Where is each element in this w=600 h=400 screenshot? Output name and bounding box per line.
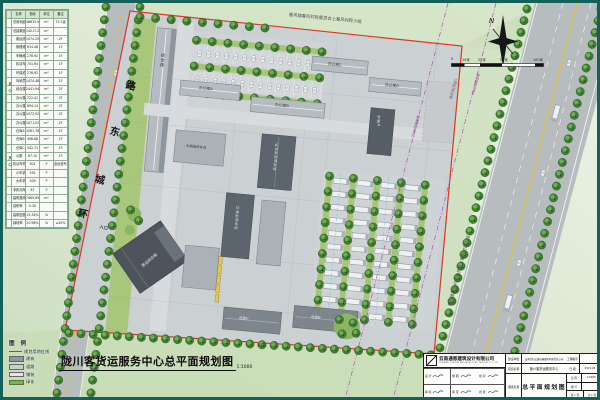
site-plan-drawing: N 名称 指标 单位 备注 总用地面积 48813.95 m² 73.2亩 bbox=[0, 0, 600, 400]
building-annex bbox=[182, 245, 220, 290]
table-row: 办公楼D 1071.02 m² 2F bbox=[7, 119, 68, 127]
date-value: 2021.04 bbox=[580, 364, 600, 373]
signature-mark bbox=[460, 389, 472, 395]
table-row: 办公楼C 1072.02 m² 2F bbox=[7, 111, 68, 119]
col-note: 备注 bbox=[54, 11, 68, 19]
drawing-scale: 1:1000 bbox=[237, 365, 253, 371]
owner-value: 云南世纪交通运输集团有限责任公司 bbox=[522, 354, 566, 363]
signature-mark bbox=[487, 373, 499, 379]
table-row: 总用地面积 48813.95 m² 73.2亩 bbox=[7, 19, 68, 27]
legend-swatch bbox=[9, 356, 24, 362]
table-row: 小车机动车停车位 192 个 bbox=[7, 169, 68, 177]
drawing-name-value: 总平面规划图 bbox=[522, 374, 566, 399]
table-row: 绿地率 20.96% % ≥20% bbox=[7, 219, 68, 227]
legend-item-label: 建筑 bbox=[26, 356, 34, 362]
col-name: 名称 bbox=[12, 11, 26, 19]
legend-item-label: 道路 bbox=[26, 364, 34, 370]
drawing-title-area: 陇川客货运服务中心总平面规划图 1:1000 bbox=[59, 353, 252, 371]
signature-cell: 制 图 bbox=[451, 368, 478, 384]
scale-label: 比 例 bbox=[567, 374, 582, 382]
project-value: 陇川客货运服务中心 bbox=[522, 364, 566, 373]
drawing-name-label: 图纸名称 bbox=[506, 374, 522, 399]
label-warehouse-b: 仓库B bbox=[311, 316, 321, 320]
table-row: 容积率 0.30 bbox=[7, 203, 68, 211]
drawing-title: 陇川客货运服务中心总平面规划图 bbox=[59, 353, 236, 371]
among-label: 其 中 bbox=[8, 82, 13, 94]
table-row: 驾驶员休息室 1474.48 m² 1F bbox=[7, 77, 68, 85]
legend-swatch bbox=[9, 372, 24, 378]
col-value: 指标 bbox=[26, 11, 40, 19]
table-row: 仓库C 442.71 m² 1F bbox=[7, 144, 68, 152]
signature-mark bbox=[432, 373, 444, 379]
legend-item-label: 绿化 bbox=[26, 379, 34, 385]
table-row: 仓库A 1061.78 m² 1F bbox=[7, 128, 68, 136]
sheet-total: 共 1 张 bbox=[584, 391, 600, 399]
legend-swatch bbox=[9, 364, 24, 370]
date-label: 日 期 bbox=[566, 364, 580, 373]
signature-mark bbox=[432, 389, 444, 395]
truck-yard bbox=[309, 170, 445, 333]
project-label: 项目名称 bbox=[506, 364, 522, 373]
label-warehouse-a: 仓库A bbox=[376, 115, 381, 127]
table-row: 车辆维修车间 276.92 m² 1F bbox=[7, 52, 68, 60]
table-row: 机动车检测车间 701.94 m² 1F bbox=[7, 61, 68, 69]
north-label: N bbox=[489, 17, 495, 25]
label-warehouse-c: 仓库C bbox=[239, 317, 249, 321]
scale-tick: 100米 bbox=[533, 57, 543, 62]
indicator-table: 名称 指标 单位 备注 总用地面积 48813.95 m² 73.2亩 总建筑面… bbox=[5, 9, 69, 229]
legend-item: 绿化 bbox=[9, 379, 67, 385]
scale-tick: 0 bbox=[451, 57, 453, 61]
signature-label: 校 对 bbox=[479, 374, 485, 378]
company-logo bbox=[426, 355, 437, 366]
signature-cell: 批 准 bbox=[478, 384, 505, 400]
table-row: 办公楼B 694.14 m² 2F bbox=[7, 102, 68, 110]
table-row: 环保检测车间 276.92 m² 1F bbox=[7, 69, 68, 77]
signature-label: 制 图 bbox=[452, 374, 458, 378]
table-header-row: 名称 指标 单位 备注 bbox=[7, 11, 68, 19]
legend-item-label: 铺装 bbox=[26, 372, 34, 378]
signature-label: 设 计 bbox=[425, 374, 431, 378]
table-row: 仓库B 498.88 m² 1F bbox=[7, 136, 68, 144]
signature-cell: 设 计 bbox=[424, 368, 451, 384]
table-row: 管理维修用房 634.48 m² 1F bbox=[7, 44, 68, 52]
signature-label: 审 核 bbox=[425, 390, 431, 394]
signature-cell: 审 定 bbox=[451, 384, 478, 400]
figure-no-value bbox=[582, 383, 600, 391]
table-row: 建筑基底面积 7465.69 m² bbox=[7, 194, 68, 202]
figure-no-label: 图 号 bbox=[567, 383, 582, 391]
signature-mark bbox=[487, 389, 499, 395]
table-row: 客运综合楼 1074.25 m² 2F bbox=[7, 36, 68, 44]
table-row: 总建筑面积 14217.28 m² bbox=[7, 27, 68, 35]
signature-mark bbox=[460, 373, 472, 379]
table-row: 大车机动车停车位 109 个 bbox=[7, 178, 68, 186]
scale-tick: 10米 bbox=[462, 57, 470, 62]
table-row: 综合楼 2441.94 m² 2F bbox=[7, 86, 68, 94]
scale-tick: 25米 bbox=[478, 57, 486, 62]
table-row: 建筑密度 15.34% % bbox=[7, 211, 68, 219]
site-interior bbox=[87, 3, 472, 378]
signature-label: 批 准 bbox=[479, 390, 485, 394]
scale-value: 1:1000 bbox=[582, 374, 600, 382]
scale-bar: 0 10米 25米 50米 100米 bbox=[451, 57, 551, 75]
label-zonghelou: 综合楼 bbox=[160, 53, 166, 68]
table-row: 办公楼A 722.41 m² 2F bbox=[7, 94, 68, 102]
signature-cell: 校 对 bbox=[478, 368, 505, 384]
legend-item: 铺装 bbox=[9, 372, 67, 378]
legend-title: 图 例 bbox=[9, 339, 67, 347]
legend-swatch bbox=[9, 351, 22, 352]
title-block: 云南通恩建筑设计有限公司 YUNNAN TONGEN ARCHITECTURE … bbox=[423, 353, 600, 400]
legend-item-label: 规划用地红线 bbox=[24, 349, 49, 355]
scale-bar-graphic bbox=[451, 63, 547, 68]
col-unit: 单位 bbox=[40, 11, 54, 19]
project-no-label: 工程编号 bbox=[566, 354, 580, 363]
table-row: 机动车停车位总数 301 个 含运营车位 bbox=[7, 161, 68, 169]
table-row: 公厕 67.10 m² 1F bbox=[7, 153, 68, 161]
owner-label: 建设单位 bbox=[506, 354, 522, 363]
project-no-value bbox=[580, 354, 600, 363]
signature-label: 审 定 bbox=[452, 390, 458, 394]
signature-cell: 审 核 bbox=[424, 384, 451, 400]
among-label: 其 中 bbox=[8, 156, 13, 168]
legend-swatch bbox=[9, 380, 24, 386]
table-row: 非机动车停车位 87 个 bbox=[7, 186, 68, 194]
label-entrance-south: 入口 bbox=[257, 343, 265, 347]
sheet-no: 第 1 张 bbox=[567, 391, 584, 399]
company-name-en: YUNNAN TONGEN ARCHITECTURE DESIGN CO.,LT… bbox=[439, 362, 499, 364]
scale-tick: 50米 bbox=[500, 57, 508, 62]
